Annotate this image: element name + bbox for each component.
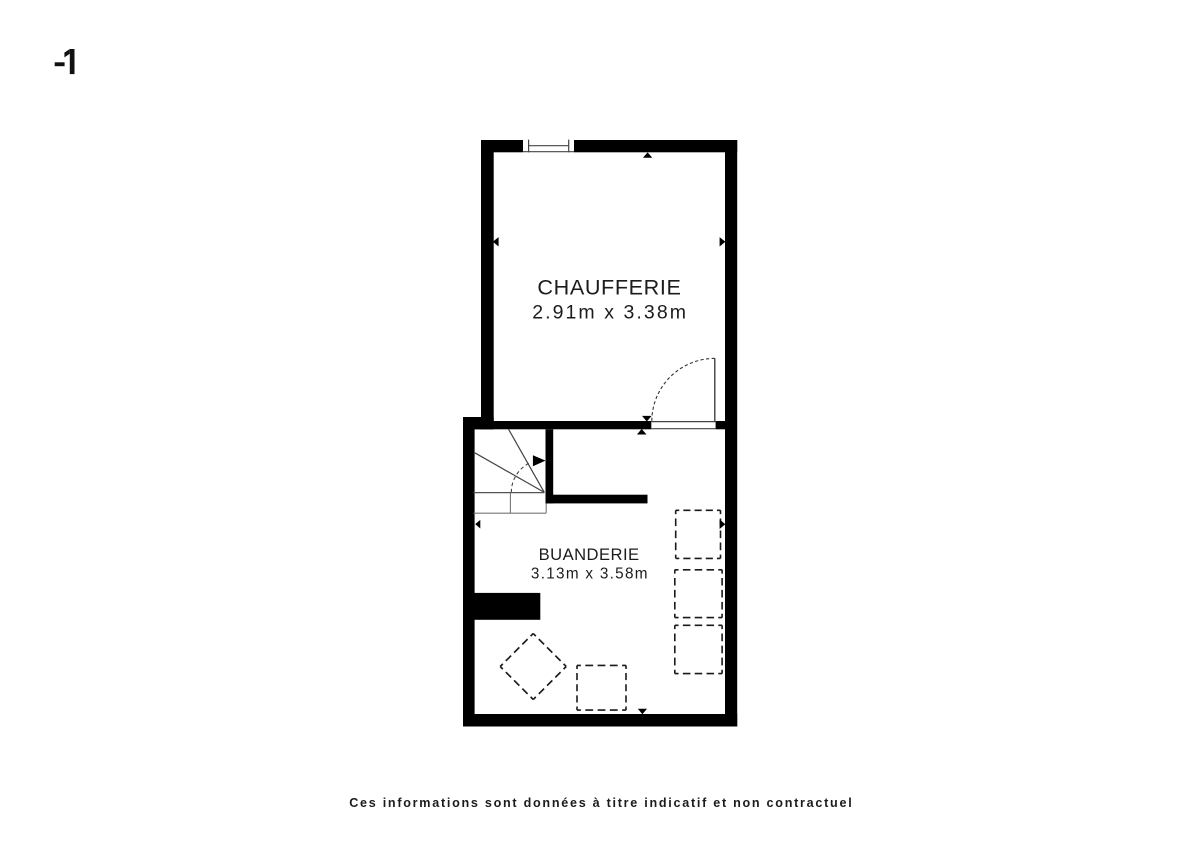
svg-text:3.13m x 3.58m: 3.13m x 3.58m <box>531 566 648 583</box>
svg-text:CHAUFFERIE: CHAUFFERIE <box>537 275 681 300</box>
svg-text:BUANDERIE: BUANDERIE <box>539 545 640 564</box>
svg-text:2.91m x 3.38m: 2.91m x 3.38m <box>532 302 686 324</box>
svg-text:Ces informations sont données: Ces informations sont données à titre in… <box>349 796 851 810</box>
